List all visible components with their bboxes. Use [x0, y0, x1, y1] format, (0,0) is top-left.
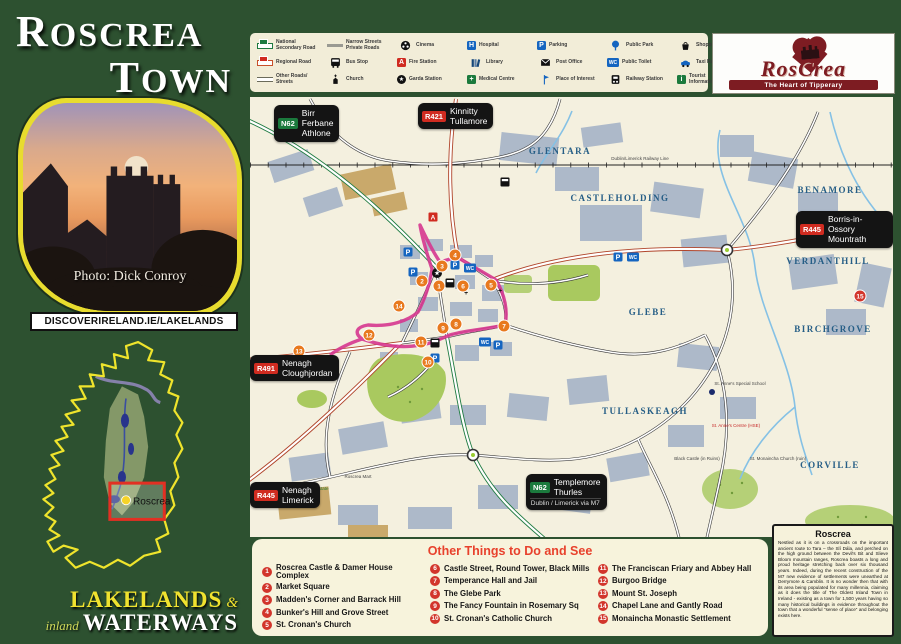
brand-waterways: Waterways — [83, 610, 238, 635]
svg-text:3: 3 — [440, 263, 444, 270]
route-badge: R445 — [800, 224, 824, 235]
poi-column-1: 1Roscrea Castle & Damer House Complex 2M… — [262, 561, 422, 633]
list-item: 1Roscrea Castle & Damer House Complex — [262, 564, 422, 580]
poi-column-3: 11The Franciscan Friary and Abbey Hall 1… — [598, 561, 758, 633]
logo-tagline: The Heart of Tipperary — [729, 80, 878, 90]
taxi-rank-icon — [677, 57, 693, 68]
legend-item: P Parking — [537, 41, 600, 50]
item-number: 6 — [430, 564, 440, 574]
svg-text:BENAMORE: BENAMORE — [797, 185, 862, 195]
public-toilet-icon: WC — [607, 58, 619, 67]
route-badge: R445 — [254, 490, 278, 501]
map-marker: 11 — [415, 336, 427, 348]
sign-destinations: Nenagh Limerick — [282, 485, 314, 505]
map-canvas: Dublin/Limerick Railway Line — [250, 97, 893, 537]
item-number: 12 — [598, 576, 608, 586]
castle-photo: Photo: Dick Conroy — [23, 103, 237, 311]
svg-text:P: P — [406, 250, 411, 257]
map-marker: 9 — [437, 322, 449, 334]
railway-label: Dublin/Limerick Railway Line — [611, 156, 669, 161]
list-item: 12Burgoo Bridge — [598, 576, 758, 586]
legend-item: Narrow Streets Private Roads — [327, 40, 390, 52]
brand-ampersand: & — [226, 595, 238, 611]
svg-text:GLENTARA: GLENTARA — [529, 146, 591, 156]
legend-item: Railway Station — [607, 74, 670, 85]
list-item: 15Monaincha Monastic Settlement — [598, 614, 758, 624]
svg-text:BIRCHGROVE: BIRCHGROVE — [794, 324, 872, 334]
item-number: 1 — [262, 567, 272, 577]
photo-credit: Photo: Dick Conroy — [23, 269, 237, 285]
medical-centre-icon: + — [467, 75, 476, 84]
map-marker: 5 — [485, 279, 497, 291]
map-marker: 15 — [854, 290, 866, 302]
post-office-icon — [537, 57, 553, 68]
road-sign-r491: R491 Nenagh Cloughjordan — [250, 355, 339, 381]
legend-item: ★ Garda Station — [397, 75, 460, 84]
legend-item: Public Park — [607, 40, 670, 51]
svg-text:St. Anne's Centre (HSE): St. Anne's Centre (HSE) — [712, 423, 761, 428]
title-line2: Town — [16, 56, 238, 100]
narrow-street-icon — [327, 40, 343, 51]
road-sign-r421: R421 Kinnitty Tullamore — [418, 103, 493, 129]
sign-destinations: Birr Ferbane Athlone — [302, 108, 334, 139]
item-number: 2 — [262, 583, 272, 593]
road-sign-n62-south: N62 Templemore Thurles Dublin / Limerick… — [526, 474, 607, 510]
map-marker: 6 — [457, 280, 469, 292]
website-bar: DISCOVERIRELAND.IE/LAKELANDS — [30, 312, 238, 331]
svg-text:10: 10 — [424, 359, 432, 366]
sign-destinations: Kinnitty Tullamore — [450, 106, 487, 126]
svg-text:14: 14 — [395, 303, 403, 310]
svg-text:Roscrea Mart: Roscrea Mart — [344, 474, 372, 479]
railway-station-icon — [607, 74, 623, 85]
road-sign-r445-southwest: R445 Nenagh Limerick — [250, 482, 320, 508]
list-item: 8The Glebe Park — [430, 589, 590, 599]
item-number: 13 — [598, 589, 608, 599]
list-item: 4Bunker's Hill and Grove Street — [262, 608, 422, 618]
svg-text:WC: WC — [481, 340, 490, 346]
map-legend: National Secondary Road Regional Road Ot… — [250, 33, 708, 92]
regional-road-icon — [257, 57, 273, 68]
item-number: 10 — [430, 614, 440, 624]
rosarea-logo: RosCrea The Heart of Tipperary — [712, 33, 895, 94]
route-badge: N62 — [278, 118, 298, 129]
map-marker: 4 — [449, 249, 461, 261]
brand-lakelands: Lakelands — [70, 587, 222, 612]
map-marker: 10 — [422, 356, 434, 368]
legend-item: Library — [467, 57, 530, 68]
map-marker: 12 — [363, 329, 375, 341]
item-number: 4 — [262, 608, 272, 618]
info-title: Roscrea — [778, 529, 888, 539]
list-item: 14Chapel Lane and Gantly Road — [598, 601, 758, 611]
sign-footer: Dublin / Limerick via M7 — [530, 498, 601, 508]
item-number: 11 — [598, 564, 608, 574]
map-marker: 3 — [436, 260, 448, 272]
legend-item: Church — [327, 74, 390, 85]
svg-text:5: 5 — [489, 282, 493, 289]
svg-text:VERDANTHILL: VERDANTHILL — [786, 256, 870, 266]
legend-item: H Hospital — [467, 41, 530, 50]
item-number: 3 — [262, 595, 272, 605]
svg-text:P: P — [453, 263, 458, 270]
ireland-inset-map: Roscrea — [16, 336, 236, 598]
list-item: 7Temperance Hall and Jail — [430, 576, 590, 586]
cinema-icon — [397, 40, 413, 51]
hospital-icon: H — [467, 41, 476, 50]
list-item: 11The Franciscan Friary and Abbey Hall — [598, 564, 758, 574]
svg-text:1: 1 — [437, 283, 441, 290]
svg-text:6: 6 — [461, 283, 465, 290]
legend-item: Regional Road — [257, 57, 320, 68]
route-badge: R421 — [422, 111, 446, 122]
svg-text:CASTLEHOLDING: CASTLEHOLDING — [570, 193, 669, 203]
svg-text:A: A — [431, 214, 436, 221]
legend-item: Cinema — [397, 40, 460, 51]
inset-roscrea-label: Roscrea — [133, 496, 171, 507]
legend-item: Other Roads/ Streets — [257, 74, 320, 86]
garda-station-icon: ★ — [397, 75, 406, 84]
svg-text:9: 9 — [441, 325, 445, 332]
svg-text:15: 15 — [856, 293, 864, 300]
svg-text:+: + — [498, 288, 502, 295]
svg-text:CORVILLE: CORVILLE — [800, 460, 860, 470]
svg-text:St. Anne's Special School: St. Anne's Special School — [714, 381, 765, 386]
things-to-do-panel: Other Things to Do and See 1Roscrea Cast… — [252, 539, 768, 636]
route-badge: R491 — [254, 363, 278, 374]
svg-text:P: P — [411, 270, 416, 277]
legend-item: + Medical Centre — [467, 75, 530, 84]
svg-text:P: P — [616, 255, 621, 262]
list-item: 9The Fancy Fountain in Rosemary Sq — [430, 601, 590, 611]
fire-station-icon: A — [397, 58, 406, 67]
bus-stop-icon — [327, 57, 343, 68]
item-number: 8 — [430, 589, 440, 599]
item-number: 9 — [430, 601, 440, 611]
roscrea-town-map-poster: Roscrea Town — [0, 0, 901, 644]
sign-destinations: Borris-in-Ossory Mountrath — [828, 214, 887, 245]
road-sign-n62-north: N62 Birr Ferbane Athlone — [274, 105, 339, 142]
list-item: 3Madden's Corner and Barrack Hill — [262, 595, 422, 605]
legend-item: Bus Stop — [327, 57, 390, 68]
poi-column-2: 6Castle Street, Round Tower, Black Mills… — [430, 561, 590, 633]
svg-text:WC: WC — [466, 266, 475, 272]
svg-text:12: 12 — [365, 332, 373, 339]
title-line1: Roscrea — [16, 10, 238, 54]
info-body-text: Nestled as it is on a crossroads on the … — [778, 540, 888, 618]
tourist-information-icon: i — [677, 75, 686, 84]
item-number: 7 — [430, 576, 440, 586]
shopping-centre-icon — [677, 40, 693, 51]
map-marker: 8 — [450, 318, 462, 330]
ireland-outline: Roscrea — [16, 336, 236, 598]
map-marker: 7 — [498, 320, 510, 332]
sidebar: Roscrea Town — [8, 6, 244, 638]
svg-text:8: 8 — [454, 321, 458, 328]
list-item: 2Market Square — [262, 583, 422, 593]
legend-item: National Secondary Road — [257, 40, 320, 52]
svg-text:TULLASKEAGH: TULLASKEAGH — [602, 406, 688, 416]
fire-station-icon: A — [429, 213, 438, 222]
svg-text:WC: WC — [629, 255, 638, 261]
item-number: 14 — [598, 601, 608, 611]
logo-name: RosCrea — [717, 56, 890, 82]
parking-icon: P — [537, 41, 546, 50]
legend-item: Place of Interest — [537, 74, 600, 85]
legend-item: WC Public Toilet — [607, 58, 670, 67]
church-icon — [327, 74, 343, 85]
other-road-icon — [257, 74, 273, 85]
legend-item: Post Office — [537, 57, 600, 68]
legend-item: A Fire Station — [397, 58, 460, 67]
svg-text:P: P — [496, 343, 501, 350]
map-marker: 2 — [416, 275, 428, 287]
sign-destinations: Templemore Thurles — [554, 477, 601, 497]
list-item: 5St. Cronan's Church — [262, 620, 422, 630]
svg-text:7: 7 — [502, 323, 506, 330]
roscrea-info-panel: Roscrea Nestled as it is on a crossroads… — [772, 524, 894, 637]
map-marker: 1 — [433, 280, 445, 292]
road-sign-r445-east: R445 Borris-in-Ossory Mountrath — [796, 211, 893, 248]
sign-destinations: Nenagh Cloughjordan — [282, 358, 333, 378]
svg-text:Black Castle (in Ruins): Black Castle (in Ruins) — [674, 456, 720, 461]
svg-text:GLEBE: GLEBE — [629, 307, 668, 317]
item-number: 5 — [262, 620, 272, 630]
library-icon — [467, 57, 483, 68]
map-marker: 14 — [393, 300, 405, 312]
item-number: 15 — [598, 614, 608, 624]
lakelands-waterways-logo: Lakelands & inland Waterways — [46, 588, 238, 634]
page-title: Roscrea Town — [16, 10, 238, 100]
castle-photo-frame: Photo: Dick Conroy — [18, 98, 242, 316]
place-of-interest-icon — [537, 74, 553, 85]
brand-inland: inland — [46, 618, 79, 633]
town-map: Dublin/Limerick Railway Line — [250, 97, 893, 537]
list-item: 6Castle Street, Round Tower, Black Mills — [430, 564, 590, 574]
svg-text:St. Monaincha Church (ruin): St. Monaincha Church (ruin) — [750, 456, 807, 461]
svg-text:4: 4 — [453, 252, 457, 259]
things-to-do-title: Other Things to Do and See — [262, 544, 758, 558]
list-item: 10St. Cronan's Catholic Church — [430, 614, 590, 624]
public-park-icon — [607, 40, 623, 51]
svg-text:2: 2 — [420, 278, 424, 285]
national-road-icon — [257, 40, 273, 51]
list-item: 13Mount St. Joseph — [598, 589, 758, 599]
roscrea-dot — [121, 496, 130, 505]
route-badge: N62 — [530, 482, 550, 493]
svg-text:11: 11 — [418, 339, 425, 346]
